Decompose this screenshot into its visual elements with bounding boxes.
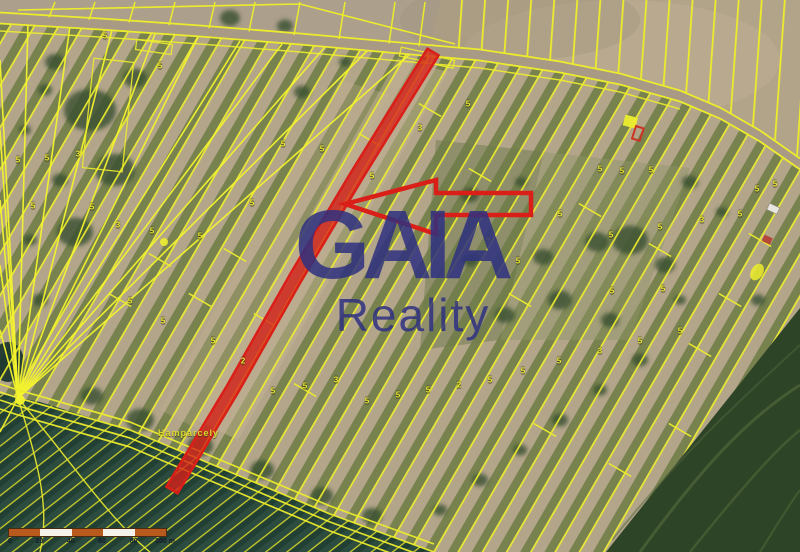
parcel-number: 5 (370, 172, 374, 181)
parcel-number: 5 (516, 257, 520, 266)
parcel-number: 5 (271, 387, 275, 396)
scale-bar-segment (103, 529, 134, 536)
scale-bar-label: 80 (130, 538, 138, 545)
parcel-number: 5 (558, 210, 562, 219)
scale-bar-segment (9, 529, 40, 536)
parcel-number: 5 (755, 185, 759, 194)
parcel-number: 5 (426, 386, 430, 395)
scale-bar-labels: 020406080100 m (8, 537, 168, 547)
parcel-number: 5 (557, 357, 561, 366)
scale-bar-segment (40, 529, 71, 536)
parcel-number: 5 (466, 100, 470, 109)
parcel-number: 2 (457, 381, 461, 390)
aerial-map: 5555355535553555555255355525553555555535… (0, 0, 800, 552)
parcel-number: 5 (396, 391, 400, 400)
scale-bar-label: 40 (67, 538, 75, 545)
parcel-number: 3 (598, 347, 602, 356)
parcel-number: 5 (678, 327, 682, 336)
parcel-number: 5 (773, 180, 777, 189)
scale-bar-label: 0 (8, 538, 12, 545)
parcel-number: 3 (700, 216, 704, 225)
parcel-number: 5 (281, 140, 285, 149)
map-scale-bar: 020406080100 m (8, 528, 168, 547)
scale-bar-segment (72, 529, 103, 536)
parcel-number: 3 (116, 221, 120, 230)
parcel-number: 5 (620, 167, 624, 176)
parcel-number: 5 (609, 231, 613, 240)
field-name-label: Hamparcely (158, 428, 219, 438)
parcel-number: 5 (303, 382, 307, 391)
parcel-number: 5 (103, 32, 107, 41)
parcel-number: 2 (241, 357, 245, 366)
parcel-line-junction (15, 395, 25, 405)
parcel-number: 9 (486, 236, 490, 245)
parcel-number: 5 (45, 154, 49, 163)
parcel-number: 3 (334, 376, 338, 385)
parcel-number: 5 (16, 156, 20, 165)
parcel-number: 5 (649, 166, 653, 175)
parcel-number: 5 (598, 165, 602, 174)
parcel-number: 5 (250, 199, 254, 208)
parcel-number: 5 (638, 337, 642, 346)
parcel-number: 5 (198, 232, 202, 241)
parcel-number: 5 (521, 367, 525, 376)
parcel-number: 5 (661, 285, 665, 294)
scale-bar-label: 60 (98, 538, 106, 545)
parcel-number: 5 (150, 227, 154, 236)
parcel-number: 5 (31, 202, 35, 211)
parcel-number: 5 (320, 145, 324, 154)
parcel-number: 3 (418, 124, 422, 133)
parcel-number: 5 (610, 287, 614, 296)
scale-bar-segments (8, 528, 167, 537)
parcel-number: 5 (738, 210, 742, 219)
parcel-number: 5 (658, 223, 662, 232)
scale-bar-segment (135, 529, 166, 536)
parcel-number: 5 (211, 337, 215, 346)
parcel-number: 5 (365, 397, 369, 406)
scale-bar-label: 100 m (155, 538, 175, 545)
parcel-number: 3 (76, 150, 80, 159)
parcel-number: 5 (158, 62, 162, 71)
parcel-number: 5 (488, 376, 492, 385)
parcel-number: 5 (128, 297, 132, 306)
map-graphics (0, 0, 800, 552)
parcel-number: 5 (161, 317, 165, 326)
parcel-number: 5 (90, 203, 94, 212)
scale-bar-label: 20 (35, 538, 43, 545)
